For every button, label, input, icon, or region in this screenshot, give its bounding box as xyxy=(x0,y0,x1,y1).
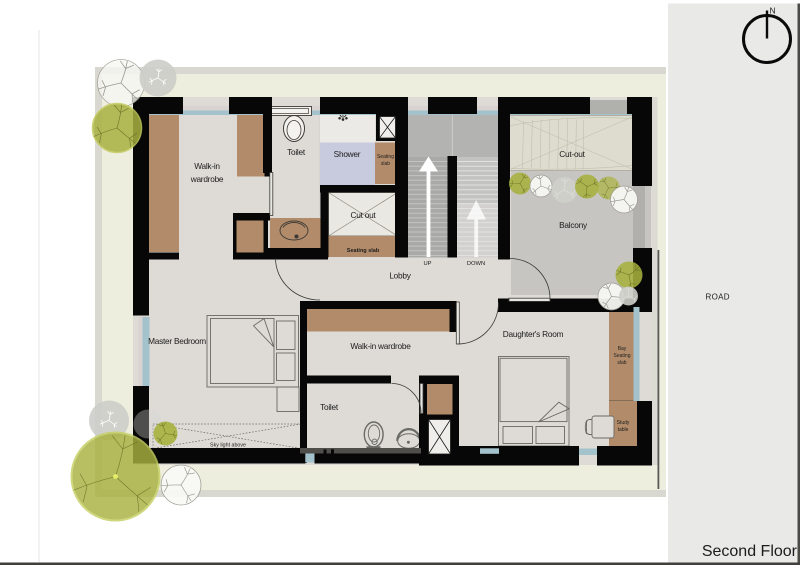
svg-text:Seating: Seating xyxy=(377,154,394,160)
svg-text:Toilet: Toilet xyxy=(287,147,306,157)
svg-text:Bay: Bay xyxy=(618,346,627,352)
svg-text:Toilet: Toilet xyxy=(320,402,339,412)
svg-text:Lobby: Lobby xyxy=(389,271,411,281)
svg-text:DOWN: DOWN xyxy=(467,261,485,267)
svg-text:Shower: Shower xyxy=(334,149,361,159)
svg-text:Master Bedroom: Master Bedroom xyxy=(148,336,206,346)
svg-text:wardrobe: wardrobe xyxy=(190,174,224,184)
svg-text:Sky light above: Sky light above xyxy=(210,443,246,449)
svg-text:Seating: Seating xyxy=(614,353,631,359)
svg-text:UP: UP xyxy=(423,261,431,267)
svg-text:Walk-in: Walk-in xyxy=(194,161,220,171)
svg-text:slab: slab xyxy=(381,161,390,167)
svg-text:table: table xyxy=(618,427,629,433)
svg-text:Daughter's Room: Daughter's Room xyxy=(503,329,564,339)
svg-text:Seating slab: Seating slab xyxy=(347,248,380,254)
svg-text:Study: Study xyxy=(617,420,630,426)
svg-text:Cut out: Cut out xyxy=(350,210,376,220)
svg-text:Second Floor: Second Floor xyxy=(702,543,798,560)
svg-text:ROAD: ROAD xyxy=(706,293,730,302)
svg-text:Balcony: Balcony xyxy=(559,220,588,230)
svg-text:slab: slab xyxy=(617,360,626,366)
svg-text:Cut-out: Cut-out xyxy=(559,149,585,159)
svg-text:N: N xyxy=(770,6,776,16)
svg-text:Walk-in wardrobe: Walk-in wardrobe xyxy=(350,341,411,351)
